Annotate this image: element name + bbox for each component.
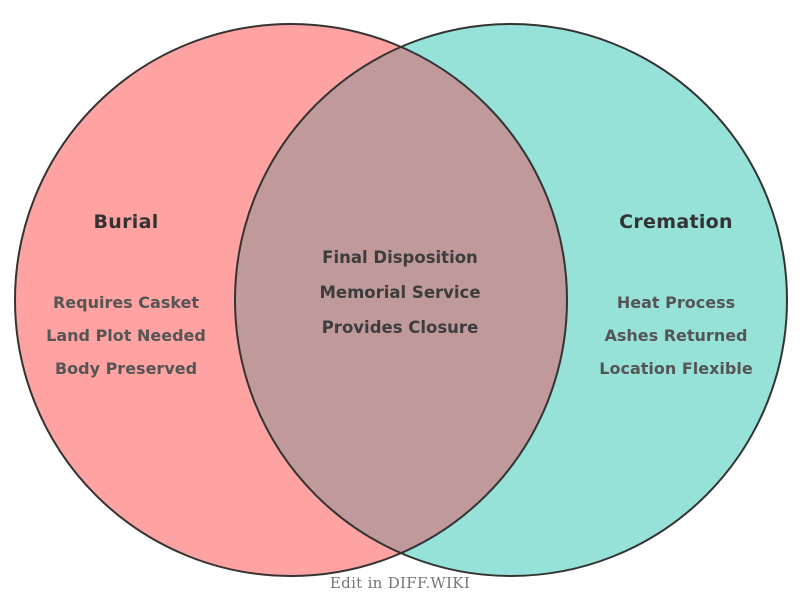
burial-title: Burial xyxy=(93,211,158,233)
cremation-item: Location Flexible xyxy=(599,359,753,378)
intersection-item: Provides Closure xyxy=(322,318,479,337)
cremation-title: Cremation xyxy=(619,211,733,233)
intersection-item: Final Disposition xyxy=(322,248,478,267)
intersection-item: Memorial Service xyxy=(319,283,480,302)
venn-diagram-stage: Burial Requires Casket Land Plot Needed … xyxy=(0,0,800,600)
burial-item: Land Plot Needed xyxy=(46,326,206,345)
burial-item: Requires Casket xyxy=(53,293,199,312)
burial-item: Body Preserved xyxy=(55,359,197,378)
cremation-item: Heat Process xyxy=(617,293,735,312)
cremation-item: Ashes Returned xyxy=(604,326,747,345)
venn-diagram: Burial Requires Casket Land Plot Needed … xyxy=(0,0,800,600)
footer-credit-link[interactable]: Edit in DIFF.WIKI xyxy=(330,574,470,592)
